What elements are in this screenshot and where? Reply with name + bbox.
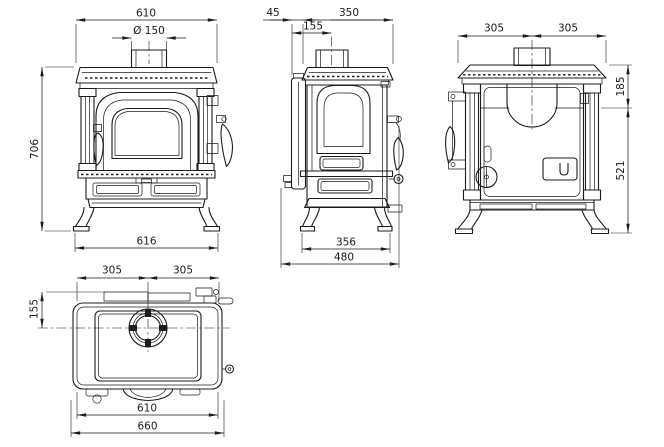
rear-left-leg <box>458 210 471 229</box>
top-plate-front <box>76 68 217 84</box>
side-view-body <box>284 50 404 231</box>
rear-lower-height-label: 521 <box>615 160 627 180</box>
stove-technical-drawing: 610 Ø 150 706 616 <box>0 0 664 447</box>
side-flue-offset-label: 155 <box>303 21 323 33</box>
front-top-width-label: 610 <box>136 8 156 20</box>
drawing-sheet: 610 Ø 150 706 616 <box>0 0 664 447</box>
top-plate-width-label: 610 <box>137 403 157 415</box>
side-leg-stance-label: 356 <box>336 237 356 249</box>
front-flue-diameter-label: Ø 150 <box>133 25 165 37</box>
left-pillar <box>81 97 94 164</box>
door-glass <box>112 109 182 159</box>
rear-right-leg <box>594 210 607 229</box>
top-view-dimensions: 305 305 155 610 660 <box>29 265 231 438</box>
side-handle-front <box>221 124 233 167</box>
top-plate-side <box>302 68 393 81</box>
rear-flue-left-label: 305 <box>484 23 504 35</box>
top-flue-depth-label: 155 <box>29 299 41 319</box>
side-arch-panel <box>317 86 370 154</box>
top-flue-right-label: 305 <box>173 265 193 277</box>
side-view: 45 350 155 356 480 <box>263 7 403 268</box>
shaker-knob-side <box>394 175 403 184</box>
front-view-dimensions: 610 Ø 150 706 616 <box>29 8 218 253</box>
door-latch <box>94 125 102 132</box>
side-handle-rear <box>446 127 455 164</box>
stove-body-side <box>307 85 387 207</box>
front-view-body <box>74 50 233 231</box>
rear-flue-drop-label: 185 <box>615 76 627 96</box>
door-handle-top <box>123 389 173 401</box>
rear-flue-right-label: 305 <box>558 23 578 35</box>
side-handle-top <box>218 298 233 304</box>
rear-slot <box>484 146 491 162</box>
side-front-leg <box>303 208 310 227</box>
front-base-width-label: 616 <box>136 236 156 248</box>
top-overall-width-label: 660 <box>137 421 157 433</box>
top-view: 305 305 155 610 660 <box>29 265 234 438</box>
rear-view-body <box>446 48 609 234</box>
front-left-leg <box>76 208 85 227</box>
front-view: 610 Ø 150 706 616 <box>29 8 233 253</box>
front-height-label: 706 <box>29 139 41 159</box>
side-body-depth-label: 350 <box>339 7 359 19</box>
side-view-dimensions: 45 350 155 356 480 <box>263 7 399 268</box>
top-view-body <box>73 288 234 403</box>
flue-collar-front <box>132 50 167 68</box>
side-handle <box>394 138 404 171</box>
front-right-leg <box>209 208 218 227</box>
side-overall-depth-label: 480 <box>334 252 354 264</box>
top-flue-left-label: 305 <box>102 265 122 277</box>
rear-shield-bracket <box>388 205 402 212</box>
rear-view: 305 305 185 521 <box>446 23 632 234</box>
shaker-knob-top <box>226 365 234 373</box>
side-door-offset-label: 45 <box>266 7 279 19</box>
